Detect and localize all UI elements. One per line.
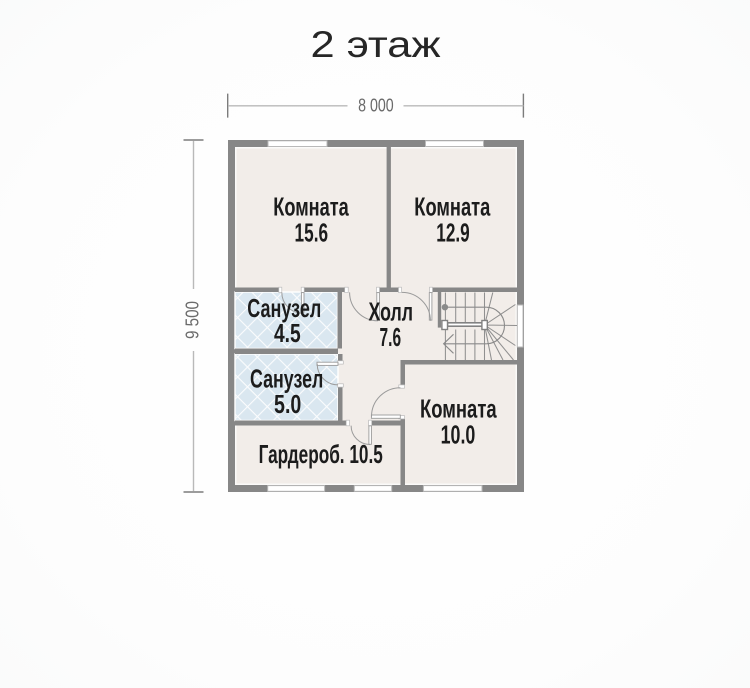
svg-text:Гардероб. 10.5: Гардероб. 10.5 <box>259 439 383 469</box>
svg-text:10.0: 10.0 <box>441 419 476 449</box>
svg-text:4.5: 4.5 <box>274 318 301 348</box>
svg-text:2 этаж: 2 этаж <box>311 24 441 65</box>
svg-text:5.0: 5.0 <box>274 389 301 419</box>
svg-text:8 000: 8 000 <box>358 95 394 115</box>
svg-text:9 500: 9 500 <box>183 301 203 339</box>
svg-text:7.6: 7.6 <box>380 322 402 352</box>
svg-text:15.6: 15.6 <box>295 217 329 247</box>
svg-text:12.9: 12.9 <box>436 217 469 247</box>
